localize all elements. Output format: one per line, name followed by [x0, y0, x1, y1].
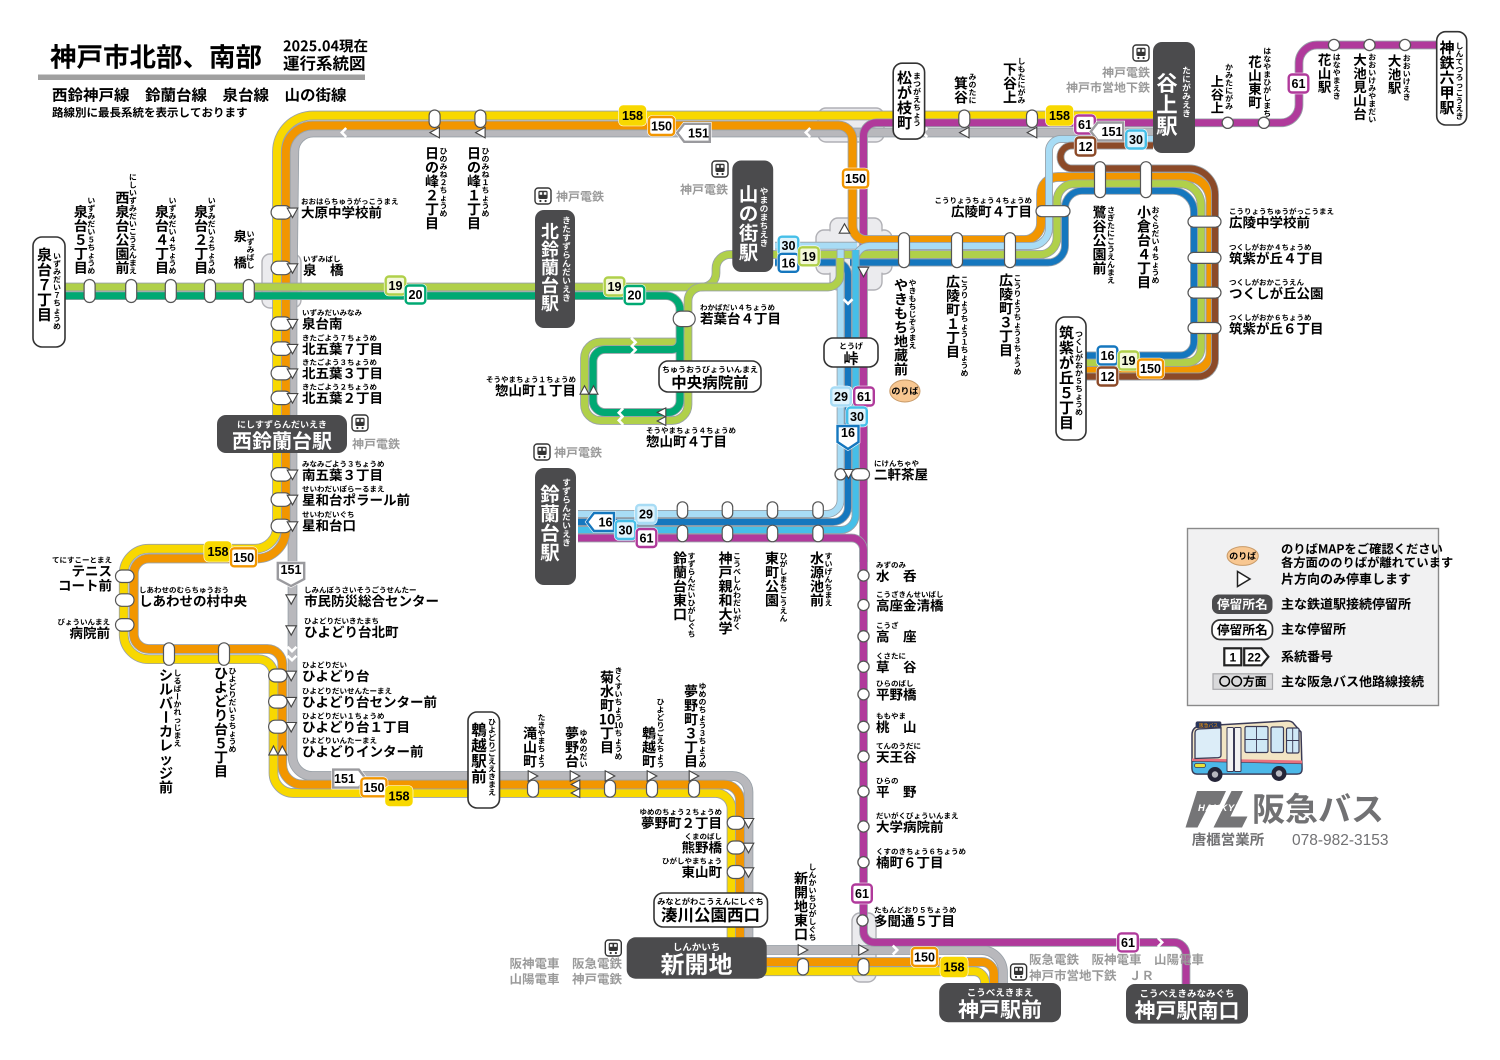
svg-text:19: 19 [1121, 354, 1135, 368]
svg-text:61: 61 [1121, 936, 1135, 950]
svg-text:078-982-3153: 078-982-3153 [1292, 832, 1389, 849]
svg-text:30: 30 [618, 524, 632, 538]
svg-text:151: 151 [334, 772, 355, 786]
svg-text:150: 150 [1140, 362, 1161, 376]
svg-text:150: 150 [233, 551, 254, 565]
svg-text:20: 20 [408, 288, 422, 302]
svg-text:22: 22 [1248, 650, 1262, 664]
svg-text:16: 16 [781, 256, 795, 270]
svg-text:30: 30 [781, 239, 795, 253]
svg-text:12: 12 [1100, 370, 1114, 384]
svg-text:16: 16 [598, 516, 612, 530]
svg-text:150: 150 [651, 120, 672, 134]
svg-text:30: 30 [850, 410, 864, 424]
svg-text:150: 150 [914, 951, 935, 965]
svg-text:19: 19 [802, 250, 816, 264]
svg-text:150: 150 [845, 172, 866, 186]
svg-text:19: 19 [607, 280, 621, 294]
svg-text:61: 61 [639, 532, 653, 546]
svg-text:阪急バス: 阪急バス [1199, 722, 1218, 729]
svg-text:30: 30 [1129, 133, 1143, 147]
svg-text:158: 158 [1049, 109, 1070, 123]
svg-text:158: 158 [388, 790, 409, 804]
svg-text:61: 61 [1291, 77, 1305, 91]
svg-text:158: 158 [207, 545, 228, 559]
svg-text:12: 12 [1078, 140, 1092, 154]
svg-text:HANKYU: HANKYU [1198, 803, 1243, 814]
svg-text:158: 158 [622, 109, 643, 123]
svg-text:1: 1 [1229, 650, 1236, 664]
svg-text:19: 19 [388, 279, 402, 293]
svg-text:20: 20 [627, 289, 641, 303]
svg-text:16: 16 [841, 426, 855, 440]
svg-text:61: 61 [855, 887, 869, 901]
svg-text:29: 29 [639, 508, 653, 522]
svg-text:16: 16 [1100, 349, 1114, 363]
svg-text:158: 158 [943, 961, 964, 975]
svg-text:151: 151 [688, 126, 709, 140]
svg-text:150: 150 [363, 781, 384, 795]
svg-text:151: 151 [280, 563, 301, 577]
svg-text:61: 61 [857, 390, 871, 404]
svg-text:29: 29 [834, 390, 848, 404]
svg-text:151: 151 [1101, 125, 1122, 139]
